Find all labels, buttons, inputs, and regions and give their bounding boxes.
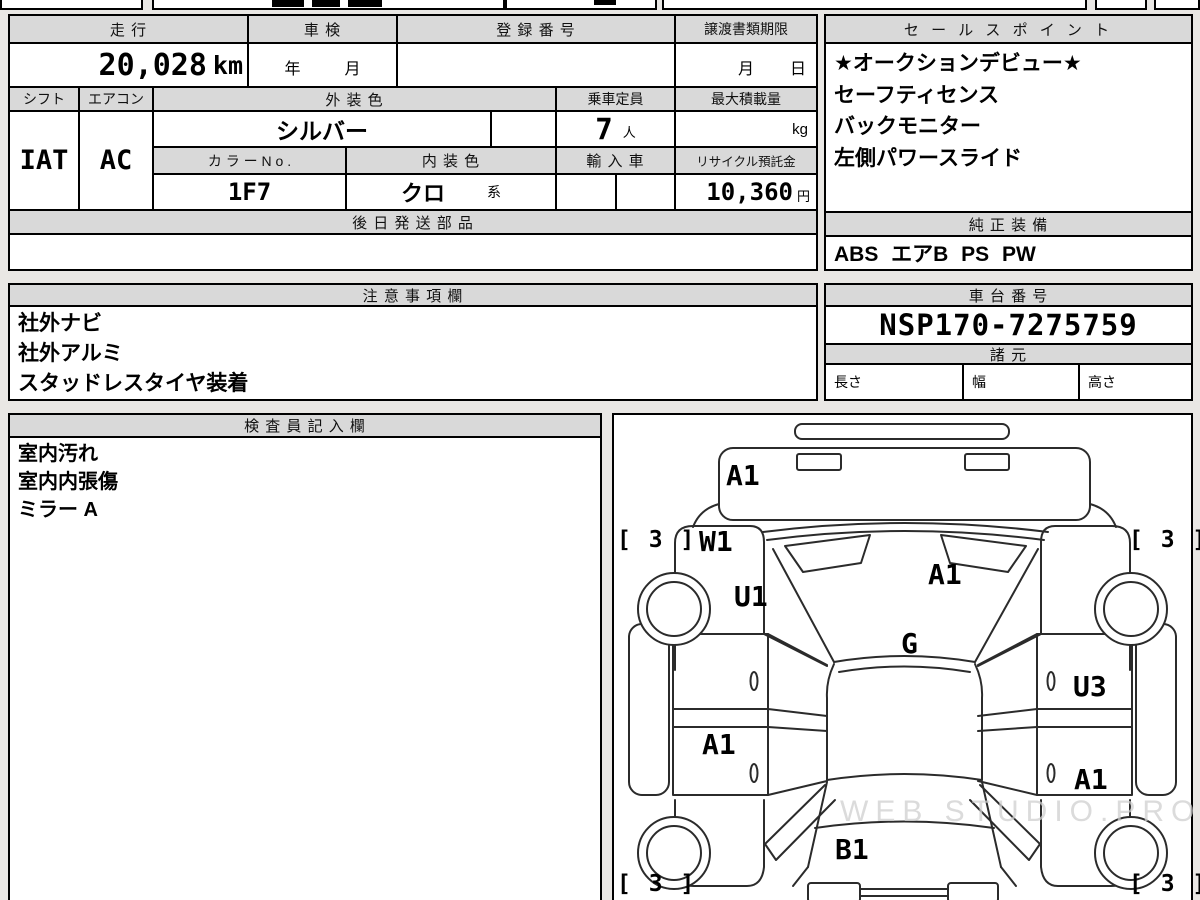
roof-right-side	[975, 664, 982, 780]
shaken-month-label: 月	[345, 55, 361, 79]
right-slide-door-handle	[1048, 764, 1055, 782]
rear-window-arc	[827, 774, 982, 780]
roof-left-side	[827, 664, 834, 780]
shaken-header: 車 検	[247, 14, 398, 44]
windshield-left-edge	[773, 549, 834, 662]
genuine-equipment-header: 純 正 装 備	[824, 211, 1193, 237]
inspector-item: 室内汚れ	[18, 440, 118, 468]
note-item: 社外ナビ	[18, 309, 248, 339]
capacity-header: 乗車定員	[555, 86, 676, 112]
tire-mark-front-left: [ 3 ]	[617, 527, 696, 553]
interior-color-suffix: 系	[487, 182, 501, 202]
cropped-text-fragment	[272, 0, 304, 7]
sales-point-item: ★オークションデビュー★	[834, 48, 1082, 80]
transfer-month-label: 月	[738, 55, 754, 79]
cropped-text-fragment	[594, 0, 616, 5]
transfer-deadline-header: 譲渡書類期限	[674, 14, 818, 44]
maxload-unit: kg	[792, 121, 808, 138]
later-parts-header: 後 日 発 送 部 品	[8, 209, 818, 235]
notes-header: 注 意 事 項 欄	[8, 283, 818, 307]
cowl-arc-2	[767, 531, 1044, 540]
sales-points-body: ★オークションデビュー★ セーフティセンス バックモニター 左側パワースライド	[824, 42, 1193, 213]
windshield-right-edge	[975, 549, 1038, 662]
color-no-value-cell: 1F7	[152, 173, 347, 211]
damage-label-left-fender: W1	[699, 525, 733, 558]
registration-header: 登 録 番 号	[396, 14, 676, 44]
spec-width-cell: 幅	[962, 363, 1080, 401]
note-item: スタッドレスタイヤ装着	[18, 369, 248, 399]
front-bumper-outline	[719, 448, 1090, 520]
mileage-value-cell: 20,028 km	[8, 42, 249, 88]
genuine-equipment-value: ABS エアB PS PW	[824, 235, 1193, 271]
interior-color-value-cell: クロ 系	[345, 173, 557, 211]
sales-point-item: セーフティセンス	[834, 80, 1082, 112]
color-no-header: カ ラ ー N o .	[152, 146, 347, 175]
capacity-unit: 人	[623, 122, 636, 146]
cropped-cell	[1095, 0, 1147, 10]
inspector-item: ミラー A	[18, 496, 118, 524]
damage-label-front-bumper: A1	[726, 459, 760, 492]
spec-length-cell: 長さ	[824, 363, 964, 401]
damage-label-right-front-door: U3	[1073, 670, 1107, 703]
cropped-cell	[505, 0, 657, 10]
left-sill-panel	[629, 624, 669, 795]
aircon-value-cell: AC	[78, 110, 154, 211]
left-bumper-fender-join	[693, 504, 719, 527]
right-taillight	[948, 883, 998, 900]
exterior-color-value-cell: シルバー	[152, 110, 492, 148]
damage-label-rear-gate: B1	[835, 833, 869, 866]
damage-label-left-slide-door: A1	[702, 728, 736, 761]
left-front-door-handle	[751, 672, 758, 690]
left-a-pillar-fold	[764, 634, 827, 666]
cropped-cell	[0, 0, 143, 10]
right-sill-panel	[1136, 624, 1176, 795]
notes-block: 注 意 事 項 欄 社外ナビ 社外アルミ スタッドレスタイヤ装着	[8, 283, 818, 401]
chassis-number: NSP170-7275759	[879, 308, 1137, 342]
notes-body: 社外ナビ 社外アルミ スタッドレスタイヤ装着	[8, 305, 818, 401]
interior-color-value: クロ	[401, 176, 445, 208]
cropped-cell	[662, 0, 1087, 10]
shift-header: シフト	[8, 86, 80, 112]
cropped-cell	[1154, 0, 1200, 10]
shift-value-cell: IAT	[8, 110, 80, 211]
mileage-unit: km	[213, 51, 243, 80]
import-header: 輸 入 車	[555, 146, 676, 175]
tire-mark-rear-left: [ 3 ]	[617, 871, 696, 897]
cropped-text-fragment	[348, 0, 382, 7]
sales-point-item: バックモニター	[834, 111, 1082, 143]
capacity-value: 7	[595, 112, 612, 146]
left-slide-door-handle	[751, 764, 758, 782]
left-headlight	[797, 454, 841, 470]
chassis-number-cell: NSP170-7275759	[824, 305, 1193, 345]
right-bumper-fender-join	[1090, 504, 1116, 527]
watermark: WEB STUDIO.PRO	[840, 795, 1200, 829]
wheel-front-right	[1095, 573, 1167, 645]
note-item: 社外アルミ	[18, 339, 248, 369]
damage-label-windshield: A1	[928, 558, 962, 591]
cropped-text-fragment	[312, 0, 340, 7]
auction-sheet: 走 行 車 検 登 録 番 号 譲渡書類期限 20,028 km 年 月 月 日…	[0, 0, 1200, 900]
mileage-header: 走 行	[8, 14, 249, 44]
recycle-header: リサイクル預託金	[674, 146, 818, 175]
sales-points-header: セ ー ル ス ポ イ ン ト	[824, 14, 1193, 44]
shaken-value-cell: 年 月	[247, 42, 398, 88]
transfer-value-cell: 月 日	[674, 42, 818, 88]
car-diagram-block: WEB STUDIO.PRO A1 W1 U1 A1 G A1 U3 A1 B1…	[612, 413, 1193, 900]
inspector-item: 室内内張傷	[18, 468, 118, 496]
recycle-value-cell: 10,360 円	[674, 173, 818, 211]
transfer-day-label: 日	[790, 55, 806, 79]
spec-width-label: 幅	[972, 372, 986, 392]
rear-bumper-left-join	[793, 867, 808, 886]
recycle-unit: 円	[797, 180, 810, 205]
tire-mark-rear-right: [ 3 ]	[1129, 871, 1200, 897]
main-spec-table: 走 行 車 検 登 録 番 号 譲渡書類期限 20,028 km 年 月 月 日…	[8, 14, 818, 271]
damage-label-cowl: G	[901, 627, 918, 660]
tire-mark-front-right: [ 3 ]	[1129, 527, 1200, 553]
spec-length-label: 長さ	[834, 372, 862, 392]
import-value-cell-1	[555, 173, 617, 211]
spec-height-cell: 高さ	[1078, 363, 1193, 401]
import-value-cell-2	[615, 173, 676, 211]
right-front-door-handle	[1048, 672, 1055, 690]
right-door-window-line	[978, 709, 1132, 731]
rear-bumper-right-join	[1001, 867, 1016, 886]
exterior-color-header: 外 装 色	[152, 86, 557, 112]
left-door-panel	[673, 634, 768, 795]
rear-bumper-top-lines	[860, 889, 948, 896]
inspector-block: 検 査 員 記 入 欄 室内汚れ 室内内張傷 ミラー A	[8, 413, 602, 900]
specs-header: 諸 元	[824, 343, 1193, 365]
maxload-header: 最大積載量	[674, 86, 818, 112]
chassis-header: 車 台 番 号	[824, 283, 1193, 307]
sales-points-block: セ ー ル ス ポ イ ン ト ★オークションデビュー★ セーフティセンス バッ…	[824, 14, 1193, 271]
chassis-block: 車 台 番 号 NSP170-7275759 諸 元 長さ 幅 高さ	[824, 283, 1193, 401]
left-door-window-line	[673, 709, 827, 731]
damage-label-right-slide-door: A1	[1074, 763, 1108, 796]
wheel-front-left	[638, 573, 710, 645]
spec-height-label: 高さ	[1088, 372, 1116, 392]
inspector-header: 検 査 員 記 入 欄	[8, 413, 602, 438]
later-parts-value-cell	[8, 233, 818, 271]
registration-value-cell	[396, 42, 676, 88]
maxload-value-cell: kg	[674, 110, 818, 148]
interior-color-header: 内 装 色	[345, 146, 557, 175]
left-taillight	[808, 883, 860, 900]
roof-front-arc-2	[839, 667, 970, 673]
inspector-body: 室内汚れ 室内内張傷 ミラー A	[8, 436, 602, 900]
front-edge-strip	[795, 424, 1009, 439]
aircon-header: エアコン	[78, 86, 154, 112]
sales-point-item: 左側パワースライド	[834, 143, 1082, 175]
recycle-value: 10,360	[706, 178, 793, 206]
left-wiper-area	[785, 535, 870, 572]
exterior-color-sub-cell	[490, 110, 557, 148]
capacity-value-cell: 7 人	[555, 110, 676, 148]
right-headlight	[965, 454, 1009, 470]
mileage-value: 20,028	[99, 48, 207, 83]
shaken-year-label: 年	[284, 55, 300, 79]
damage-label-left-front-door: U1	[734, 580, 768, 613]
